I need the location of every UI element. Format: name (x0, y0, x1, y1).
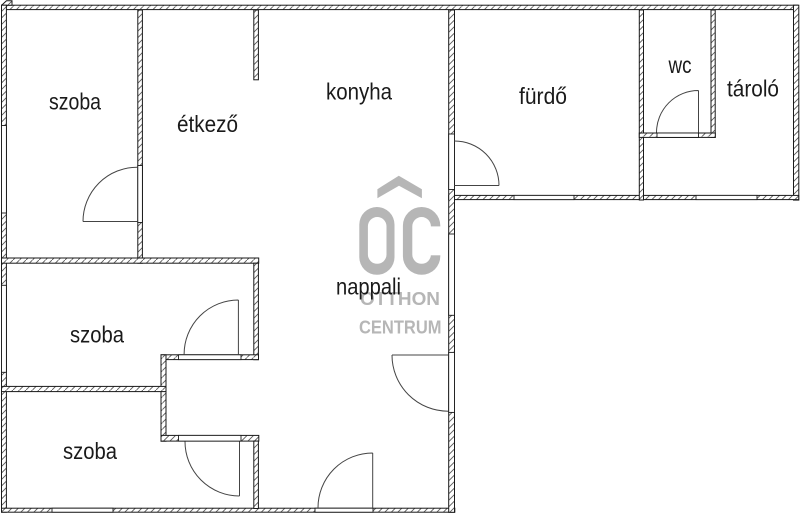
svg-text:szoba: szoba (63, 438, 118, 464)
svg-text:szoba: szoba (70, 322, 125, 348)
svg-text:szoba: szoba (49, 89, 102, 115)
svg-text:wc: wc (668, 52, 692, 78)
svg-text:tároló: tároló (727, 76, 779, 102)
svg-text:CENTRUM: CENTRUM (359, 317, 442, 338)
svg-text:étkező: étkező (177, 111, 238, 137)
svg-text:fürdő: fürdő (519, 83, 567, 109)
svg-text:nappali: nappali (336, 274, 401, 300)
svg-text:konyha: konyha (326, 79, 393, 105)
